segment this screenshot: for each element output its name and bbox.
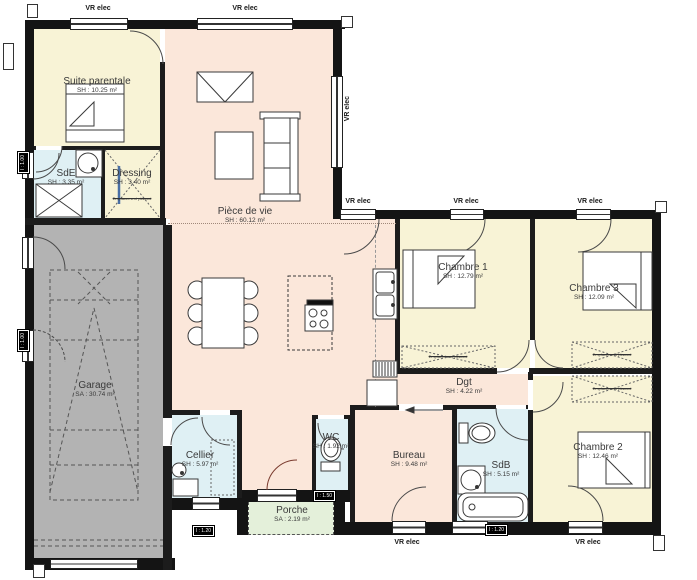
room-name: SdE: [48, 168, 84, 179]
room-area: SH : 60.12 m²: [218, 217, 272, 225]
room-area: SA : 30.74 m²: [75, 391, 114, 399]
label-wc: WC SH : 1.92 m²: [313, 432, 349, 451]
room-area: SA : 2.19 m²: [274, 516, 310, 524]
kitchen-boundary: [375, 225, 376, 407]
corner-box-nw: [27, 4, 38, 18]
porch-post-left: [237, 502, 248, 535]
label-chambre-1: Chambre 1 SH : 12.79 m²: [438, 262, 487, 281]
door-gap-wc: [318, 415, 344, 419]
dim-sdb-window: l : 1.20: [486, 525, 507, 535]
door-entry: [257, 489, 297, 502]
dim-cellier-window: l : 1.20: [193, 526, 214, 536]
room-area: SH : 5.15 m²: [483, 471, 519, 479]
room-name: Cellier: [182, 450, 218, 461]
window-suite: [70, 18, 128, 30]
door-gap-ch1: [497, 368, 529, 374]
label-chambre-3: Chambre 3 SH : 12.09 m²: [569, 283, 618, 302]
room-chambre-1: [400, 219, 530, 368]
dim-entry-door: l : 1.50: [314, 491, 335, 501]
label-piece-de-vie: Pièce de vie SH : 60.12 m²: [218, 206, 272, 225]
placard-note-ch1: Emplacement placard: [429, 354, 468, 359]
room-name: SdB: [483, 460, 519, 471]
room-area: SH : 12.09 m²: [569, 294, 618, 302]
room-name: Suite parentale: [63, 76, 130, 87]
label-dgt: Dgt SH : 4.22 m²: [446, 377, 482, 396]
label-dressing: Dressing SH : 3.40 m²: [112, 168, 151, 187]
room-area: SH : 5.97 m²: [182, 461, 218, 469]
room-name: Chambre 2: [573, 442, 622, 453]
room-area: SH : 1.92 m²: [313, 443, 349, 451]
vr-elec-label: VR elec: [453, 198, 478, 205]
wall-dressing-right: [160, 150, 165, 219]
room-name: Garage: [75, 380, 114, 391]
corner-box-ne-wing: [655, 201, 667, 213]
corner-box-sw: [33, 564, 45, 578]
vr-elec-label: VR elec: [394, 539, 419, 546]
vr-elec-label: VR elec: [344, 96, 351, 121]
wall-bureau-left: [350, 405, 355, 522]
placard-note-dressing: Emplacement placard: [113, 196, 152, 201]
corner-box-se: [653, 535, 665, 551]
room-name: Bureau: [391, 450, 427, 461]
wall-suite-right: [160, 62, 165, 150]
window-chambre1: [450, 209, 484, 220]
label-cellier: Cellier SH : 5.97 m²: [182, 450, 218, 469]
window-chambre3: [576, 209, 611, 220]
window-living-wing: [340, 209, 376, 220]
label-porche: Porche SA : 2.19 m²: [274, 505, 310, 524]
wall-sde-dressing: [101, 150, 105, 218]
dim-garage-door: l : 1.00: [18, 330, 29, 351]
room-area: SH : 3.35 m²: [48, 179, 84, 187]
room-name: Dgt: [446, 377, 482, 388]
label-suite-parentale: Suite parentale SH : 10.25 m²: [63, 76, 130, 95]
vr-elec-label: VR elec: [577, 198, 602, 205]
label-sde: SdE SH : 3.35 m²: [48, 168, 84, 187]
window-sdb: [452, 521, 488, 534]
window-chambre2: [568, 521, 603, 534]
label-chambre-2: Chambre 2 SH : 12.46 m²: [573, 442, 622, 461]
room-piece-de-vie-bas: [170, 219, 397, 412]
room-piece-de-vie-haut: [165, 29, 333, 219]
door-garage-sectional: [50, 559, 138, 569]
label-bureau: Bureau SH : 9.48 m²: [391, 450, 427, 469]
vr-elec-label: VR elec: [232, 5, 257, 12]
door-garage-service: [22, 237, 34, 269]
room-area: SH : 4.22 m²: [446, 388, 482, 396]
label-sdb: SdB SH : 5.15 m²: [483, 460, 519, 479]
porch-post-right: [334, 502, 345, 535]
room-name: Chambre 1: [438, 262, 487, 273]
window-bureau: [392, 521, 426, 534]
corner-box-ne-upper: [341, 16, 353, 28]
door-gap-cellier: [200, 410, 230, 415]
room-name: WC: [313, 432, 349, 443]
wall-cellier-right: [237, 410, 242, 498]
wall-garage-top: [25, 218, 166, 225]
room-area: SH : 9.48 m²: [391, 461, 427, 469]
wall-ch3-ch2: [533, 368, 652, 374]
room-name: Dressing: [112, 168, 151, 179]
wall-garage-right: [163, 225, 172, 570]
vr-elec-label: VR elec: [575, 539, 600, 546]
wall-right: [652, 210, 661, 535]
window-living-top: [197, 18, 293, 30]
door-gap-garage-cellier: [163, 418, 172, 446]
dim-sde-door: l : 1.00: [18, 152, 29, 173]
wall-wc-left: [312, 415, 316, 490]
vr-elec-label: VR elec: [345, 198, 370, 205]
door-gap-sdb: [496, 405, 526, 409]
room-wc: [316, 419, 348, 490]
room-name: Porche: [274, 505, 310, 516]
room-area: SH : 10.25 m²: [63, 87, 130, 95]
placard-note-ch3: Emplacement placard: [593, 352, 632, 357]
vr-elec-label: VR elec: [85, 5, 110, 12]
room-name: Pièce de vie: [218, 206, 272, 217]
living-area-boundary: [168, 223, 396, 224]
floor-plan: VR elec VR elec VR elec VR elec VR elec …: [0, 0, 697, 580]
wall-wing-top: [336, 210, 661, 219]
window-cellier: [192, 497, 220, 510]
door-gap-sde: [36, 146, 62, 150]
door-gap-bureau: [399, 404, 443, 411]
room-area: SH : 12.79 m²: [438, 273, 487, 281]
room-name: Chambre 3: [569, 283, 618, 294]
label-garage: Garage SA : 30.74 m²: [75, 380, 114, 399]
placard-note-ch2: Emplacement placard: [593, 386, 632, 391]
wall-bureau-sdb: [452, 405, 457, 522]
window-living-east: [331, 76, 343, 168]
door-gap-ch2: [528, 380, 533, 410]
room-area: SH : 3.40 m²: [112, 179, 151, 187]
room-area: SH : 12.46 m²: [573, 453, 622, 461]
gutter-box-west: [3, 43, 14, 70]
wall-ch1-left: [395, 219, 400, 372]
door-gap-ch3: [530, 340, 535, 368]
wall-left: [25, 20, 34, 570]
